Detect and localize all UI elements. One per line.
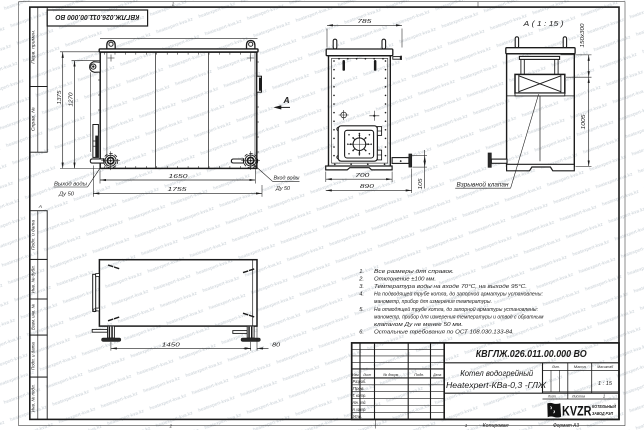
svg-text:Подп. и дата: Подп. и дата [30, 341, 35, 370]
svg-text:Heatexpert-КВа-0,3 -ГЛЖ: Heatexpert-КВа-0,3 -ГЛЖ [446, 381, 547, 390]
svg-text:На отводящей трубе котла, до з: На отводящей трубе котла, до запорной ар… [374, 306, 538, 313]
svg-text:Температура воды на входе 70°С: Температура воды на входе 70°С, на выход… [374, 284, 527, 290]
svg-text:Масштаб: Масштаб [597, 364, 614, 369]
svg-text:6.: 6. [359, 330, 364, 336]
svg-text:1270: 1270 [69, 92, 75, 107]
svg-text:5.: 5. [359, 307, 364, 313]
svg-text:Ду 50: Ду 50 [58, 191, 75, 197]
svg-text:Пров.: Пров. [353, 386, 365, 391]
svg-text:Изм.: Изм. [352, 372, 359, 377]
svg-text:1375: 1375 [57, 90, 63, 105]
svg-text:Подп.: Подп. [414, 372, 424, 377]
svg-text:Листов: Листов [571, 394, 585, 399]
svg-text:1755: 1755 [168, 187, 188, 193]
svg-text:Масса: Масса [574, 364, 587, 369]
svg-text:Т. контр.: Т. контр. [353, 393, 367, 398]
svg-text:А: А [38, 204, 42, 210]
svg-text:Инв. № дубл.: Инв. № дубл. [30, 265, 35, 293]
svg-text:Взам. инв. №: Взам. инв. № [30, 304, 35, 330]
svg-text:Остальные требования по ОСТ 10: Остальные требования по ОСТ 108.030.133-… [374, 330, 514, 336]
svg-text:Выход воды: Выход воды [54, 181, 87, 187]
svg-text:ЗАВОД РЭП: ЗАВОД РЭП [592, 411, 614, 416]
svg-text:1.: 1. [359, 269, 364, 275]
svg-text:Утв.: Утв. [353, 414, 363, 419]
svg-text:KVZR: KVZR [562, 404, 592, 419]
svg-text:манометр, прибор для измерения: манометр, прибор для измерения температу… [374, 314, 544, 320]
svg-text:КОТЕЛЬНЫЙ: КОТЕЛЬНЫЙ [592, 404, 617, 409]
svg-text:Дата: Дата [433, 372, 442, 377]
svg-text:1005: 1005 [581, 113, 587, 129]
svg-text:Отклонение ±100 мм.: Отклонение ±100 мм. [374, 276, 436, 282]
svg-text:1: 1 [603, 394, 605, 399]
svg-text:1: 1 [465, 423, 468, 428]
svg-text:Копировал: Копировал [483, 423, 509, 429]
svg-text:Справ. №: Справ. № [30, 107, 35, 132]
svg-text:Котел водогрейный: Котел водогрейный [460, 369, 534, 378]
svg-text:4.: 4. [359, 292, 364, 298]
svg-text:Н. контр.: Н. контр. [353, 407, 367, 412]
svg-text:2.: 2. [358, 276, 364, 282]
svg-text:Все размеры для справок.: Все размеры для справок. [374, 269, 454, 275]
svg-text:Подп. и дата: Подп. и дата [30, 219, 35, 250]
svg-text:Вход воды: Вход воды [274, 176, 300, 182]
svg-text:Нач. отд.: Нач. отд. [353, 400, 367, 405]
svg-text:80: 80 [272, 343, 280, 349]
svg-text:На подводящей трубе котла, до: На подводящей трубе котла, до запорной а… [374, 291, 543, 298]
svg-text:700: 700 [355, 173, 370, 179]
svg-text:КВГЛЖ.026.011.00.000 ВО: КВГЛЖ.026.011.00.000 ВО [55, 13, 139, 22]
svg-text:3.: 3. [359, 284, 364, 290]
svg-text:1650: 1650 [169, 174, 189, 180]
svg-text:Лист: Лист [547, 394, 556, 399]
svg-text:А ( 1 : 15 ): А ( 1 : 15 ) [522, 19, 564, 28]
svg-text:890: 890 [360, 184, 375, 190]
svg-text:785: 785 [357, 19, 372, 25]
svg-text:Инв. № подл.: Инв. № подл. [30, 384, 35, 412]
svg-text:Формат А3: Формат А3 [553, 423, 579, 429]
svg-text:Лист: Лист [362, 372, 371, 377]
svg-text:№ докум.: № докум. [383, 372, 399, 377]
svg-text:Взрывной клапан: Взрывной клапан [457, 182, 510, 189]
svg-text:Лит.: Лит. [551, 364, 560, 369]
svg-text:А: А [283, 95, 290, 105]
svg-text:Разраб.: Разраб. [353, 379, 367, 384]
svg-text:150х300: 150х300 [580, 23, 586, 47]
svg-text:манометр, прибор для измерения: манометр, прибор для измерения температу… [374, 299, 492, 305]
svg-text:клапаном Ду не менее 50 мм.: клапаном Ду не менее 50 мм. [374, 322, 463, 328]
svg-text:105: 105 [418, 177, 424, 189]
svg-text:1450: 1450 [162, 342, 181, 348]
svg-text:КВГЛЖ.026.011.00.000 ВО: КВГЛЖ.026.011.00.000 ВО [476, 348, 587, 360]
svg-text:Ду 50: Ду 50 [275, 186, 291, 192]
svg-text:Перв. примен.: Перв. примен. [30, 30, 35, 64]
svg-text:1 : 15: 1 : 15 [598, 381, 613, 387]
